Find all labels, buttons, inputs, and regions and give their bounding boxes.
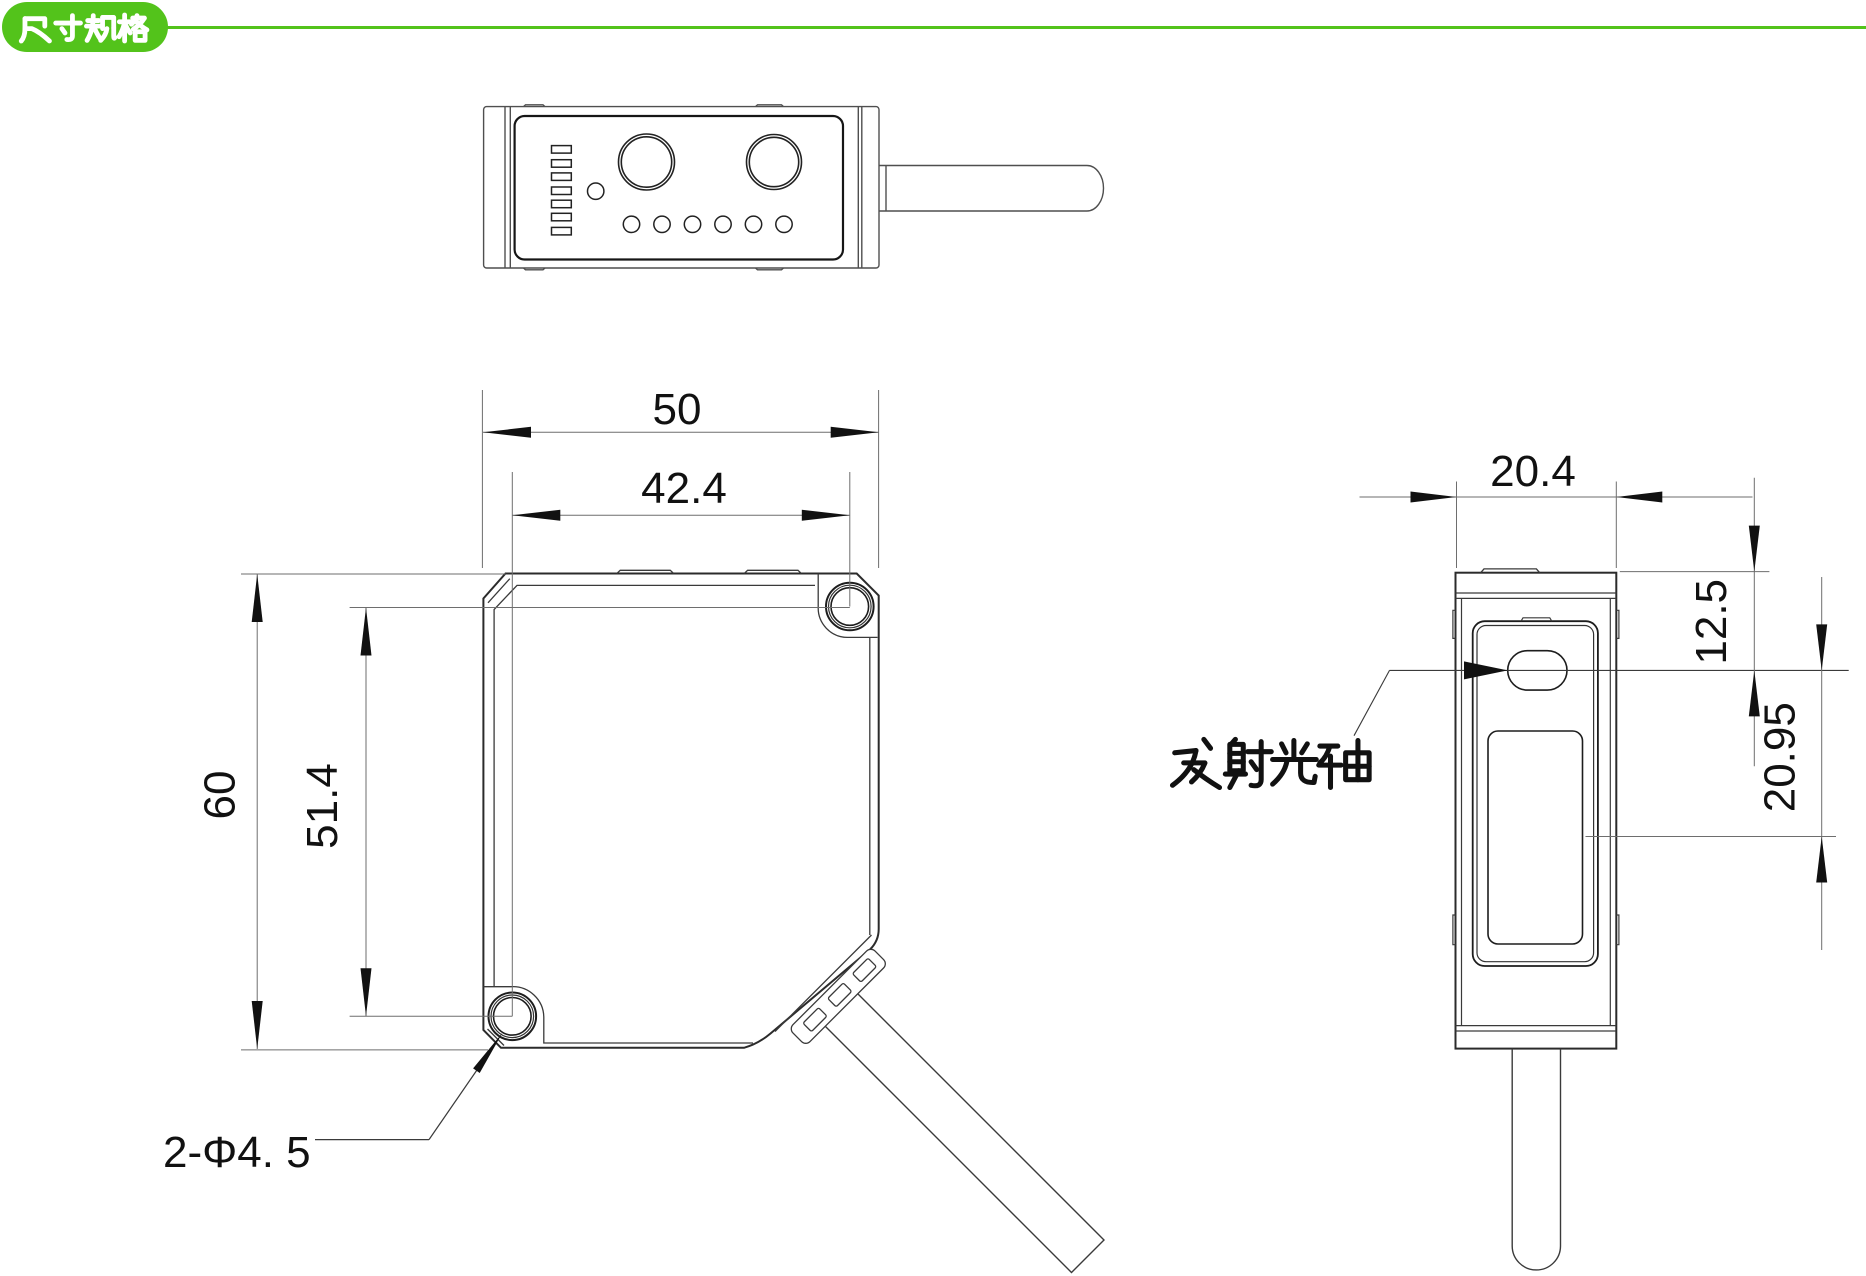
svg-text:12.5: 12.5 — [1687, 579, 1736, 665]
svg-text:50: 50 — [653, 385, 702, 434]
svg-text:2-Φ4. 5: 2-Φ4. 5 — [163, 1128, 311, 1177]
svg-text:42.4: 42.4 — [641, 464, 727, 513]
svg-text:20.95: 20.95 — [1756, 702, 1805, 812]
svg-text:51.4: 51.4 — [298, 763, 347, 849]
svg-text:60: 60 — [196, 771, 245, 820]
svg-text:20.4: 20.4 — [1490, 447, 1576, 496]
